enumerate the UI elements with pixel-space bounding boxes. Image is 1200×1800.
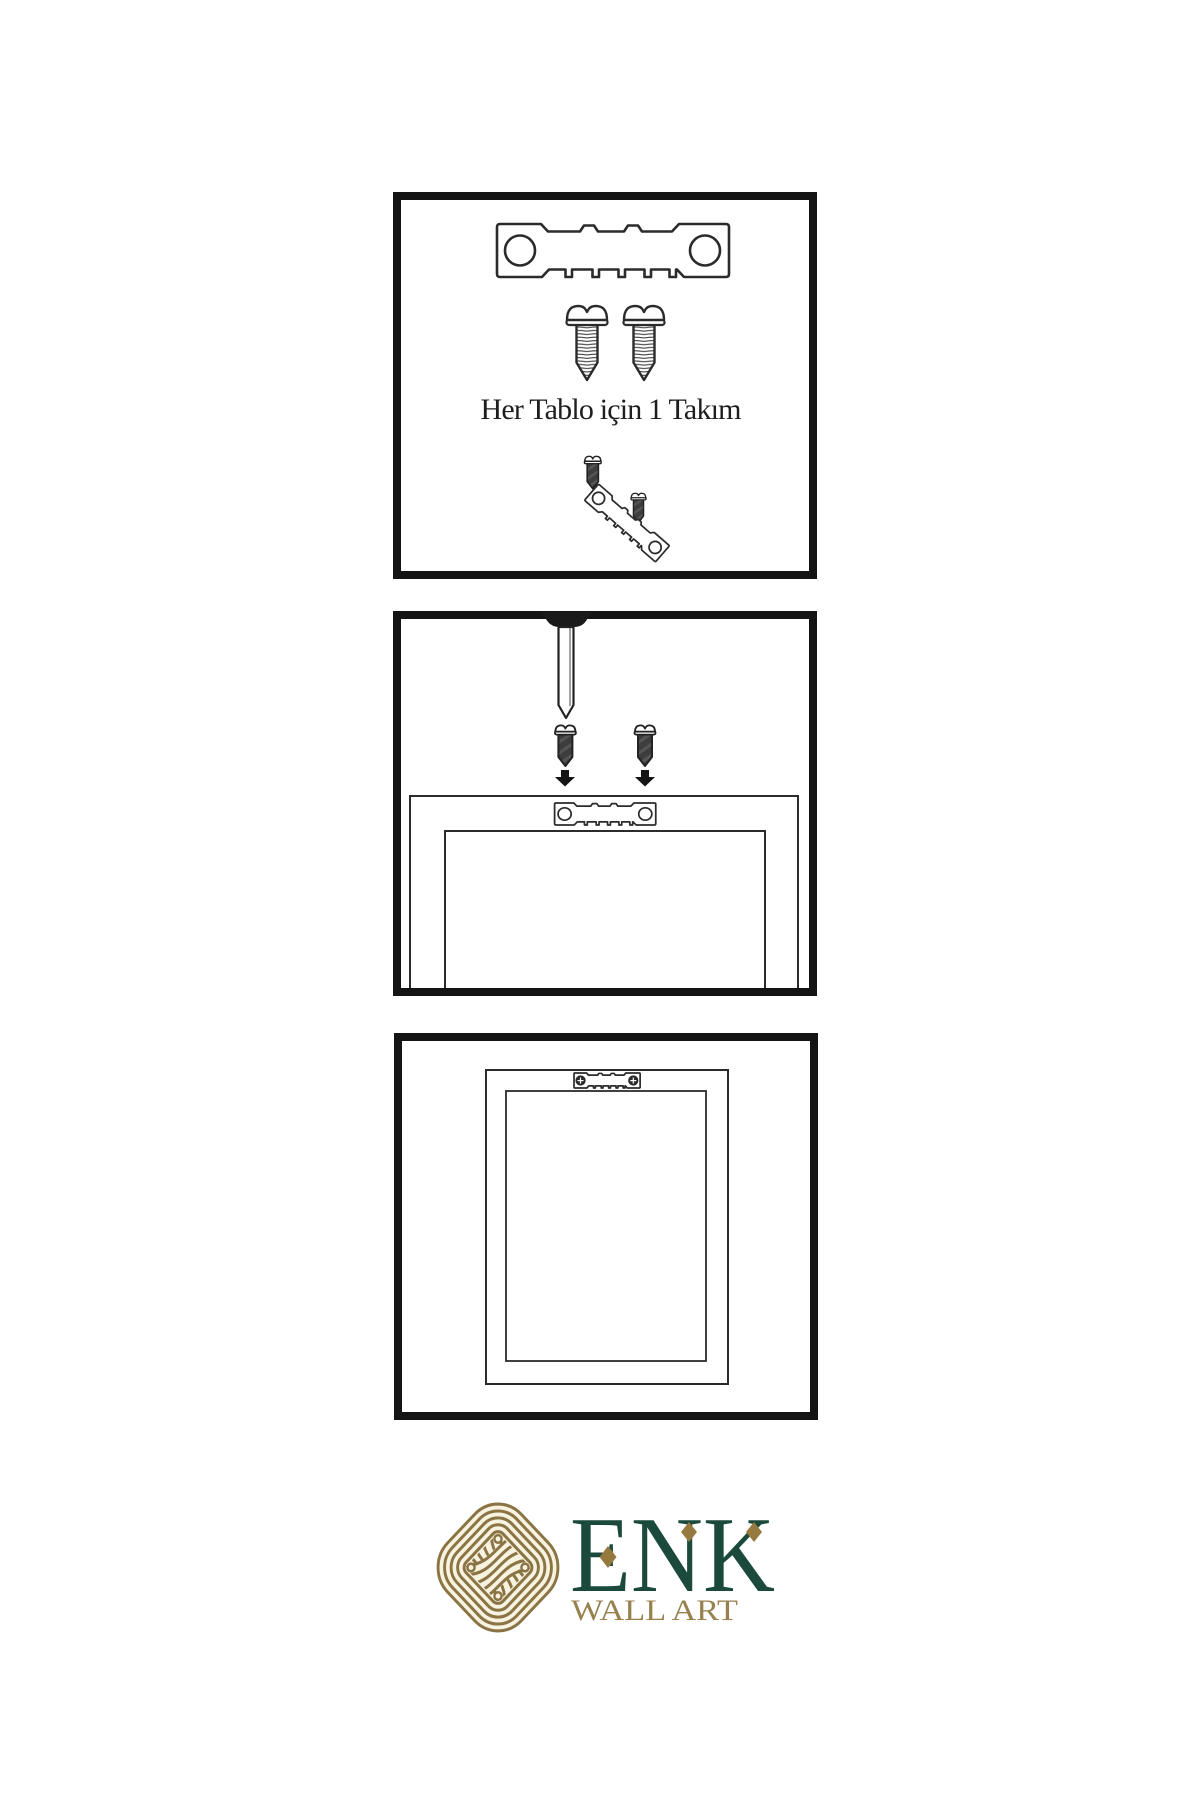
svg-text:Her Tablo için 1 Takım: Her Tablo için 1 Takım xyxy=(481,393,742,426)
svg-text:WALL ART: WALL ART xyxy=(571,1594,738,1627)
